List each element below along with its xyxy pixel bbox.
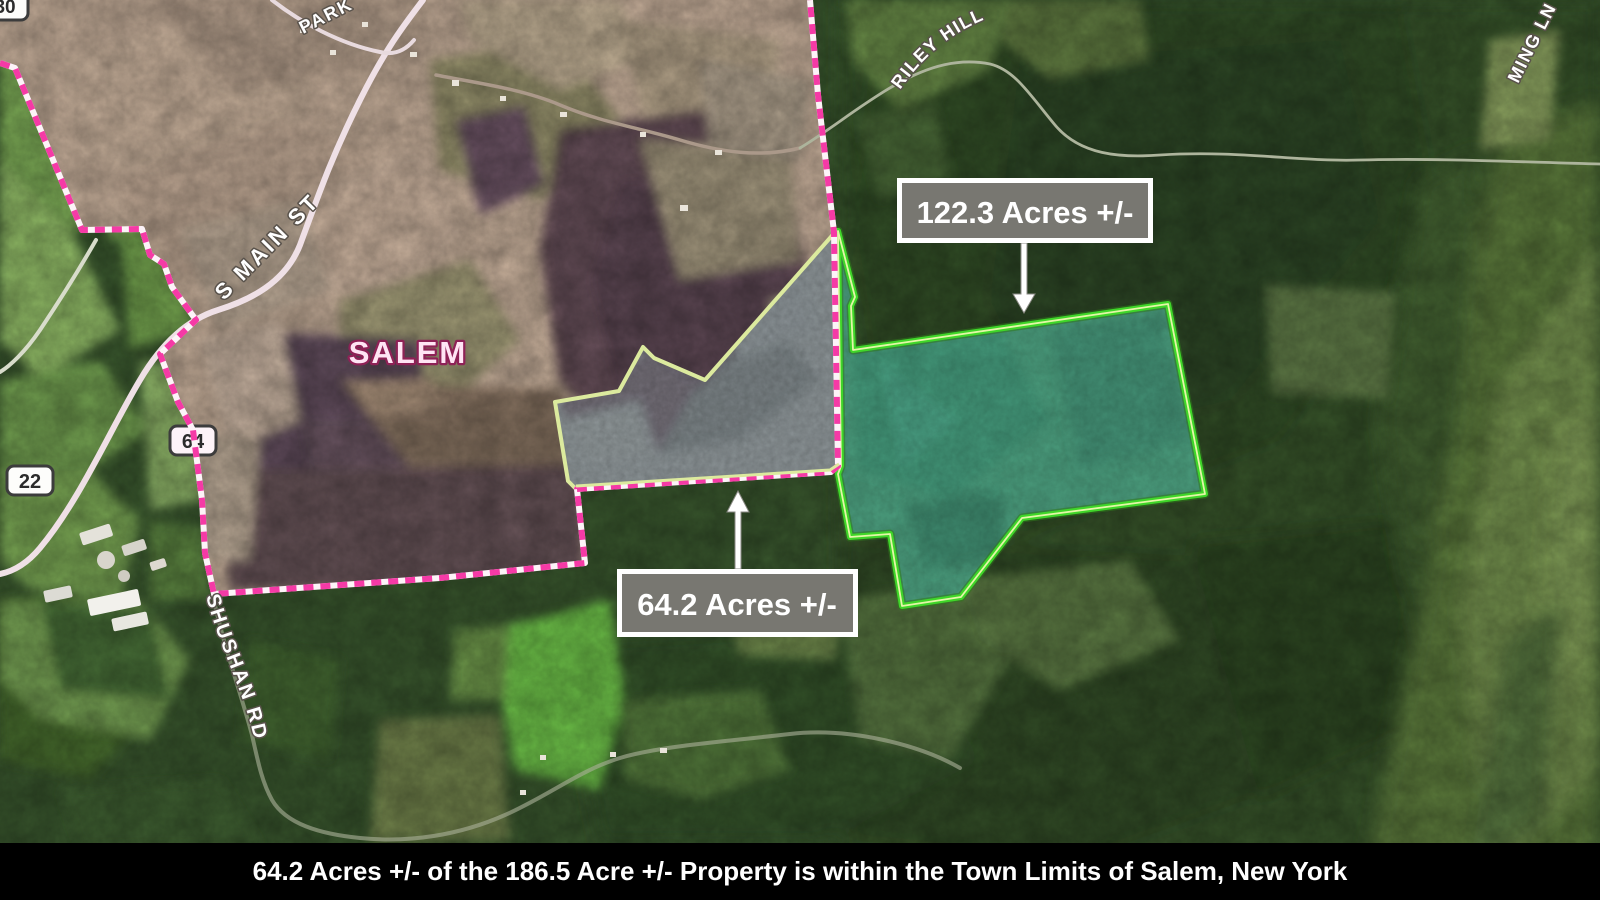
- svg-text:64.2 Acres +/-: 64.2 Acres +/-: [637, 587, 837, 622]
- svg-text:22: 22: [19, 471, 41, 493]
- svg-text:122.3 Acres +/-: 122.3 Acres +/-: [917, 195, 1134, 230]
- svg-text:30: 30: [0, 0, 16, 18]
- svg-text:SALEM: SALEM: [349, 335, 468, 370]
